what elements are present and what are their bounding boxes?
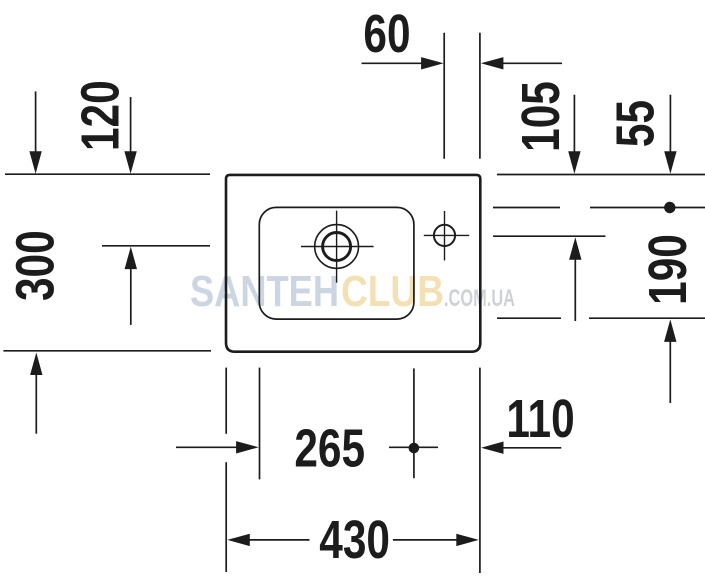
- svg-text:300: 300: [5, 230, 65, 301]
- svg-text:430: 430: [319, 510, 390, 570]
- svg-text:55: 55: [606, 100, 666, 147]
- svg-text:190: 190: [638, 234, 698, 305]
- svg-text:105: 105: [511, 81, 571, 152]
- svg-text:CLUB: CLUB: [341, 267, 444, 316]
- svg-text:SANTEH: SANTEH: [190, 267, 339, 316]
- svg-text:60: 60: [363, 4, 410, 64]
- svg-text:110: 110: [506, 389, 574, 449]
- svg-text:120: 120: [70, 80, 130, 151]
- svg-text:265: 265: [294, 419, 365, 479]
